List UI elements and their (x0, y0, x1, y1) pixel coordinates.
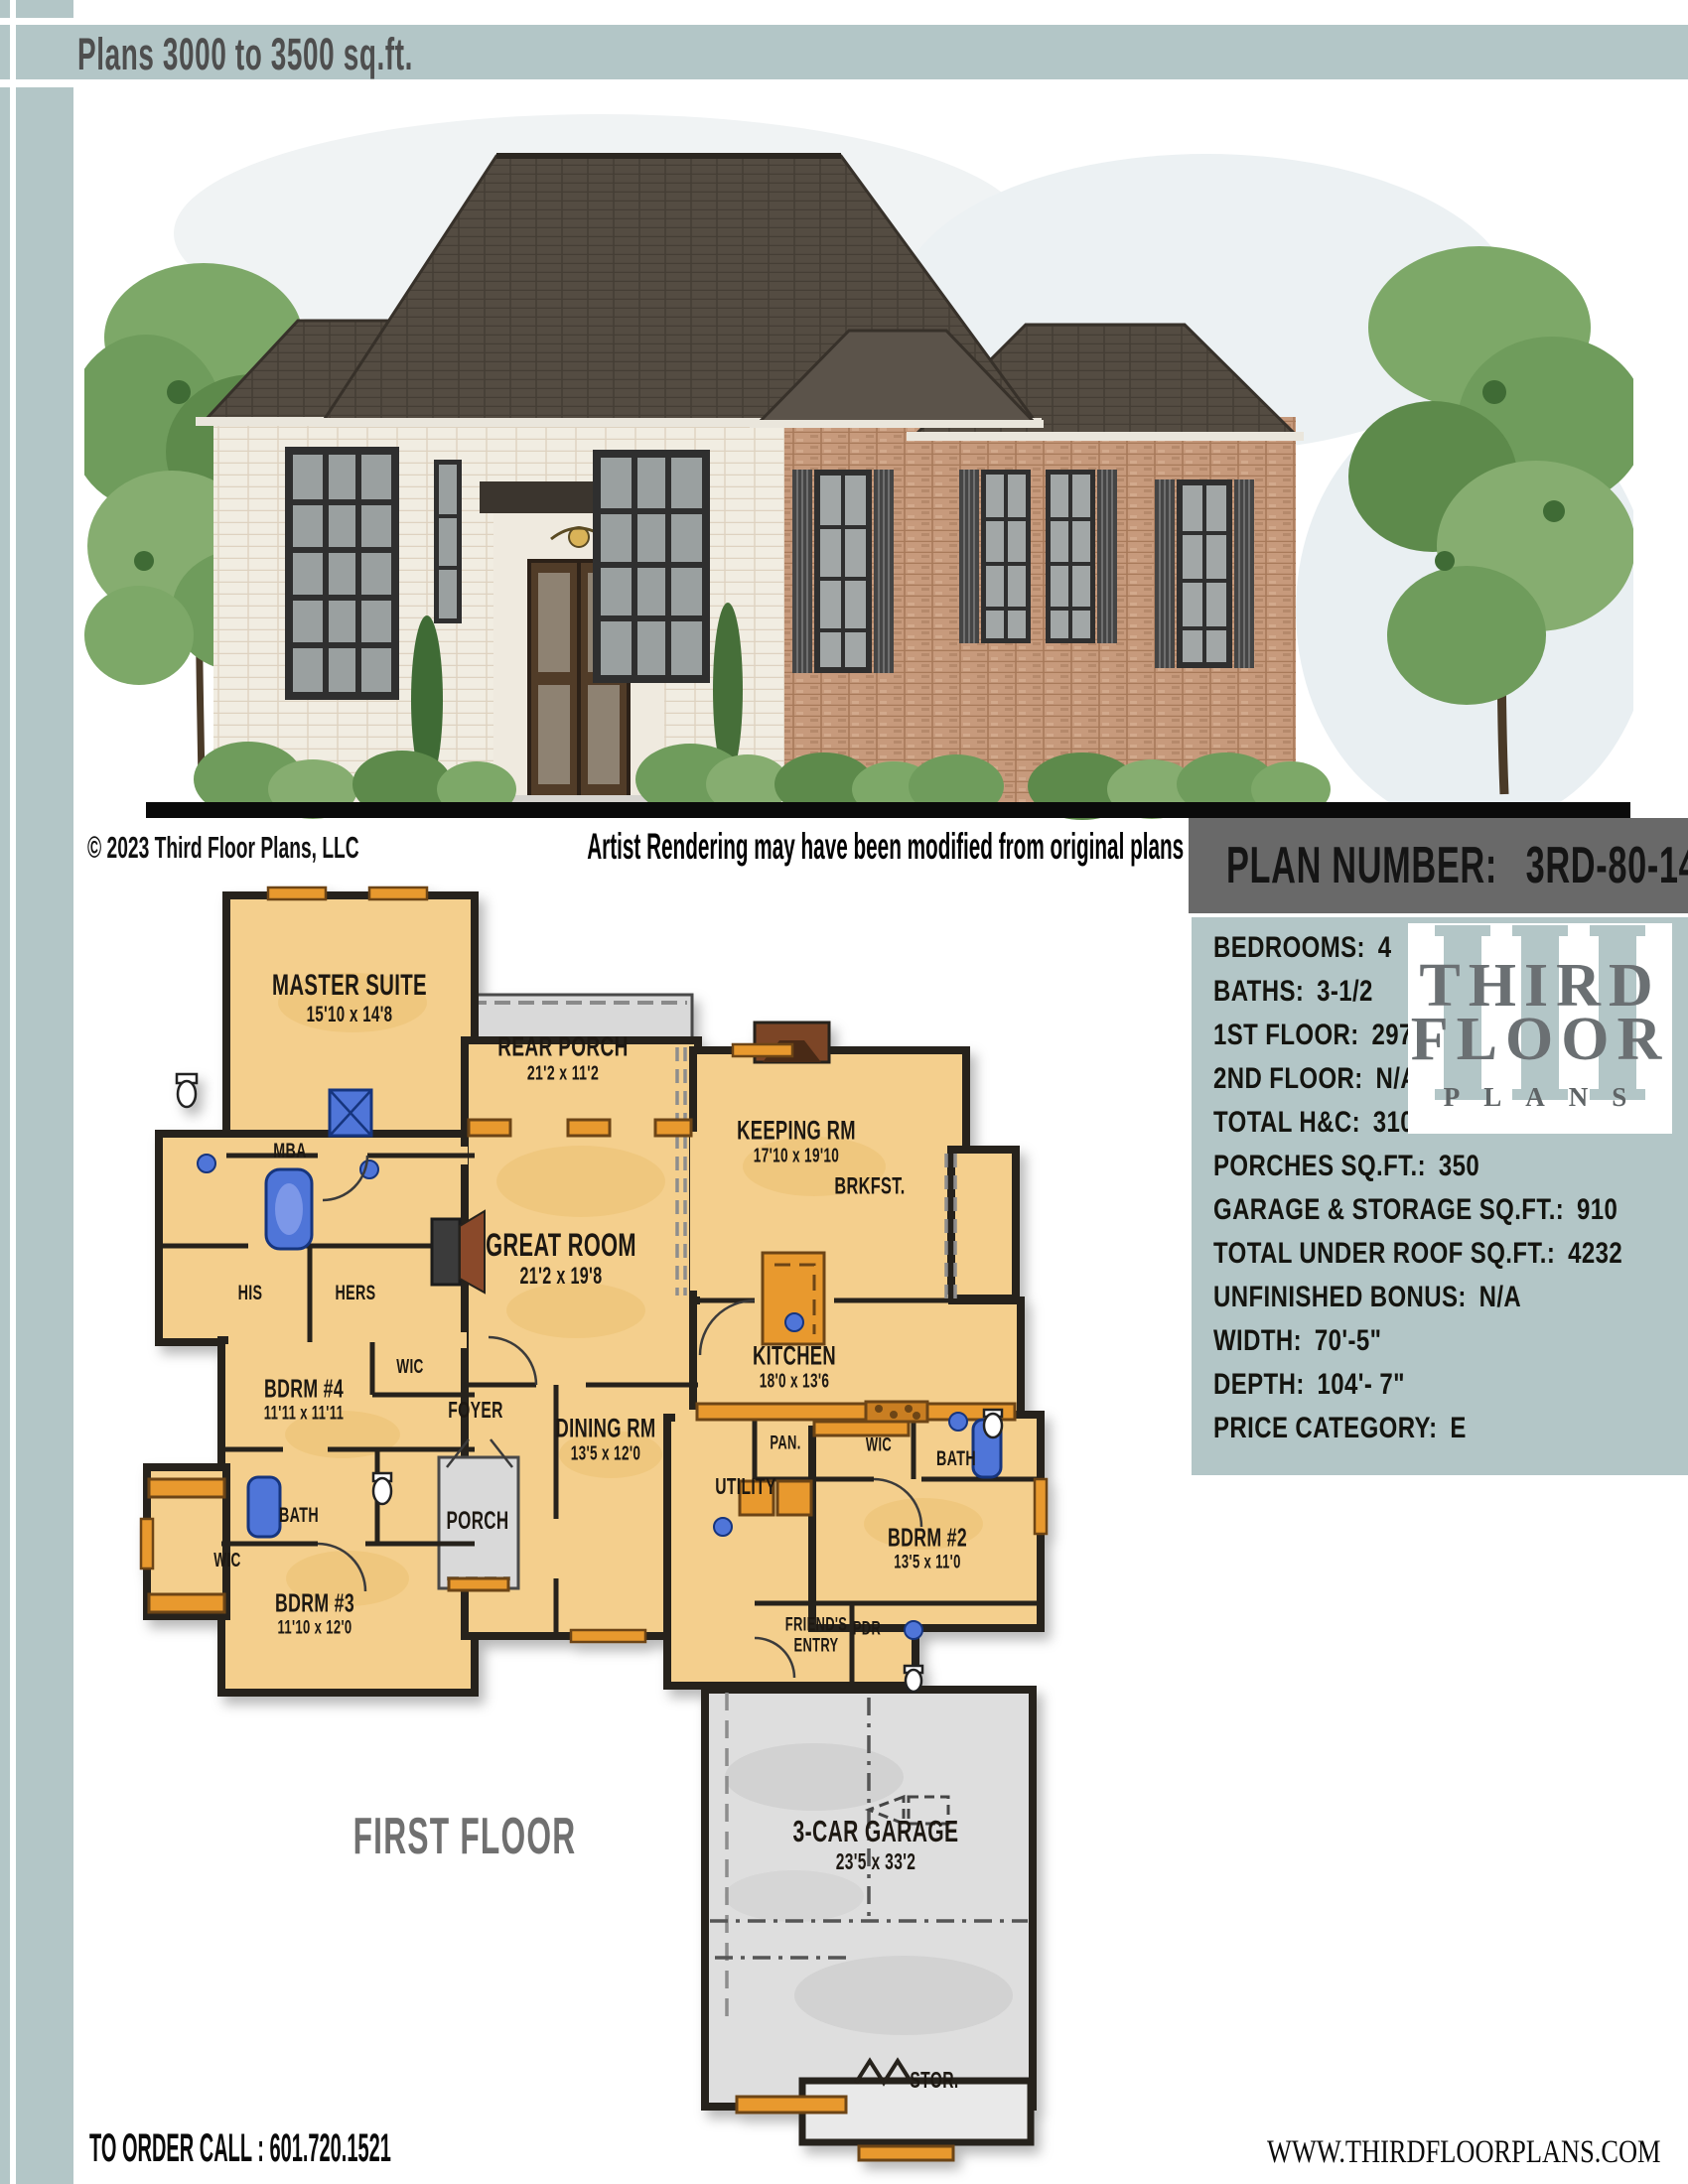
spec-value: 104'- 7" (1318, 1368, 1405, 1401)
page-title: Plans 3000 to 3500 sq.ft. (77, 29, 413, 80)
house-rendering-illustration (84, 94, 1633, 834)
ground-line (146, 802, 1630, 818)
spec-label: 2ND FLOOR: (1213, 1062, 1363, 1095)
copyright-text: © 2023 Third Floor Plans, LLC (87, 830, 359, 866)
spec-row: PRICE CATEGORY:E (1213, 1412, 1593, 1455)
plan-number-label: PLAN NUMBER: (1226, 837, 1497, 894)
spec-row: GARAGE & STORAGE SQ.FT.:910 (1213, 1193, 1593, 1237)
plan-number-value: 3RD-80-14 (1526, 837, 1688, 894)
window-narrow (434, 460, 462, 623)
left-accent-strip-wide (16, 0, 73, 2184)
stove (866, 1402, 927, 1422)
spec-label: BEDROOMS: (1213, 931, 1365, 964)
footer-website: WWW.THIRDFLOORPLANS.COM (1267, 2134, 1661, 2171)
strip-divider (0, 18, 75, 25)
spec-row: WIDTH:70'-5" (1213, 1324, 1593, 1368)
spec-label: PRICE CATEGORY: (1213, 1412, 1438, 1444)
footer-order-phone: TO ORDER CALL : 601.720.1521 (89, 2126, 391, 2171)
artist-rendering-note: Artist Rendering may have been modified … (587, 826, 1184, 868)
plan-brochure-page: Plans 3000 to 3500 sq.ft. (0, 0, 1688, 2184)
first-floor-label: FIRST FLOOR (353, 1807, 577, 1866)
floor-plan-drawing (119, 884, 1072, 2184)
window-far-right (1155, 479, 1254, 668)
spec-label: TOTAL H&C: (1213, 1106, 1360, 1139)
specs-panel: BEDROOMS:4 BATHS:3-1/2 1ST FLOOR:2972 2N… (1192, 917, 1688, 1475)
spec-label: GARAGE & STORAGE SQ.FT.: (1213, 1193, 1564, 1226)
window-right-1 (792, 470, 894, 673)
spec-label: UNFINISHED BONUS: (1213, 1281, 1467, 1313)
copyright-icon: © 2023 Third Floor Plans, LLC (87, 830, 359, 865)
spec-label: DEPTH: (1213, 1368, 1305, 1401)
spec-row: UNFINISHED BONUS:N/A (1213, 1281, 1593, 1324)
left-accent-strip-narrow (0, 0, 10, 2184)
spec-row: TOTAL UNDER ROOF SQ.FT.:4232 (1213, 1237, 1593, 1281)
logo-word-floor: FLOOR (1408, 1009, 1672, 1070)
spec-value: 70'-5" (1315, 1324, 1382, 1357)
spec-label: BATHS: (1213, 975, 1304, 1008)
plan-number-banner: PLAN NUMBER: 3RD-80-14 (1189, 818, 1688, 913)
spec-value: 3-1/2 (1317, 975, 1373, 1008)
header-band: Plans 3000 to 3500 sq.ft. (16, 25, 1688, 79)
spec-value: N/A (1479, 1281, 1522, 1313)
spec-value: E (1450, 1412, 1466, 1444)
spec-label: TOTAL UNDER ROOF SQ.FT.: (1213, 1237, 1555, 1270)
strip-divider (0, 79, 75, 87)
third-floor-plans-logo: THIRD FLOOR PLANS (1408, 923, 1672, 1134)
spec-row: DEPTH:104'- 7" (1213, 1368, 1593, 1412)
spec-label: PORCHES SQ.FT.: (1213, 1150, 1426, 1182)
spec-value: 4 (1378, 931, 1392, 964)
spec-label: 1ST FLOOR: (1213, 1019, 1359, 1051)
spec-label: WIDTH: (1213, 1324, 1302, 1357)
spec-value: 4232 (1568, 1237, 1622, 1270)
spec-value: 910 (1577, 1193, 1618, 1226)
window-center (593, 450, 710, 683)
spec-value: 350 (1439, 1150, 1479, 1182)
logo-word-plans: PLANS (1408, 1082, 1672, 1113)
window-left-wing (285, 447, 399, 700)
spec-row: PORCHES SQ.FT.:350 (1213, 1150, 1593, 1193)
front-porch-area (439, 1457, 518, 1588)
